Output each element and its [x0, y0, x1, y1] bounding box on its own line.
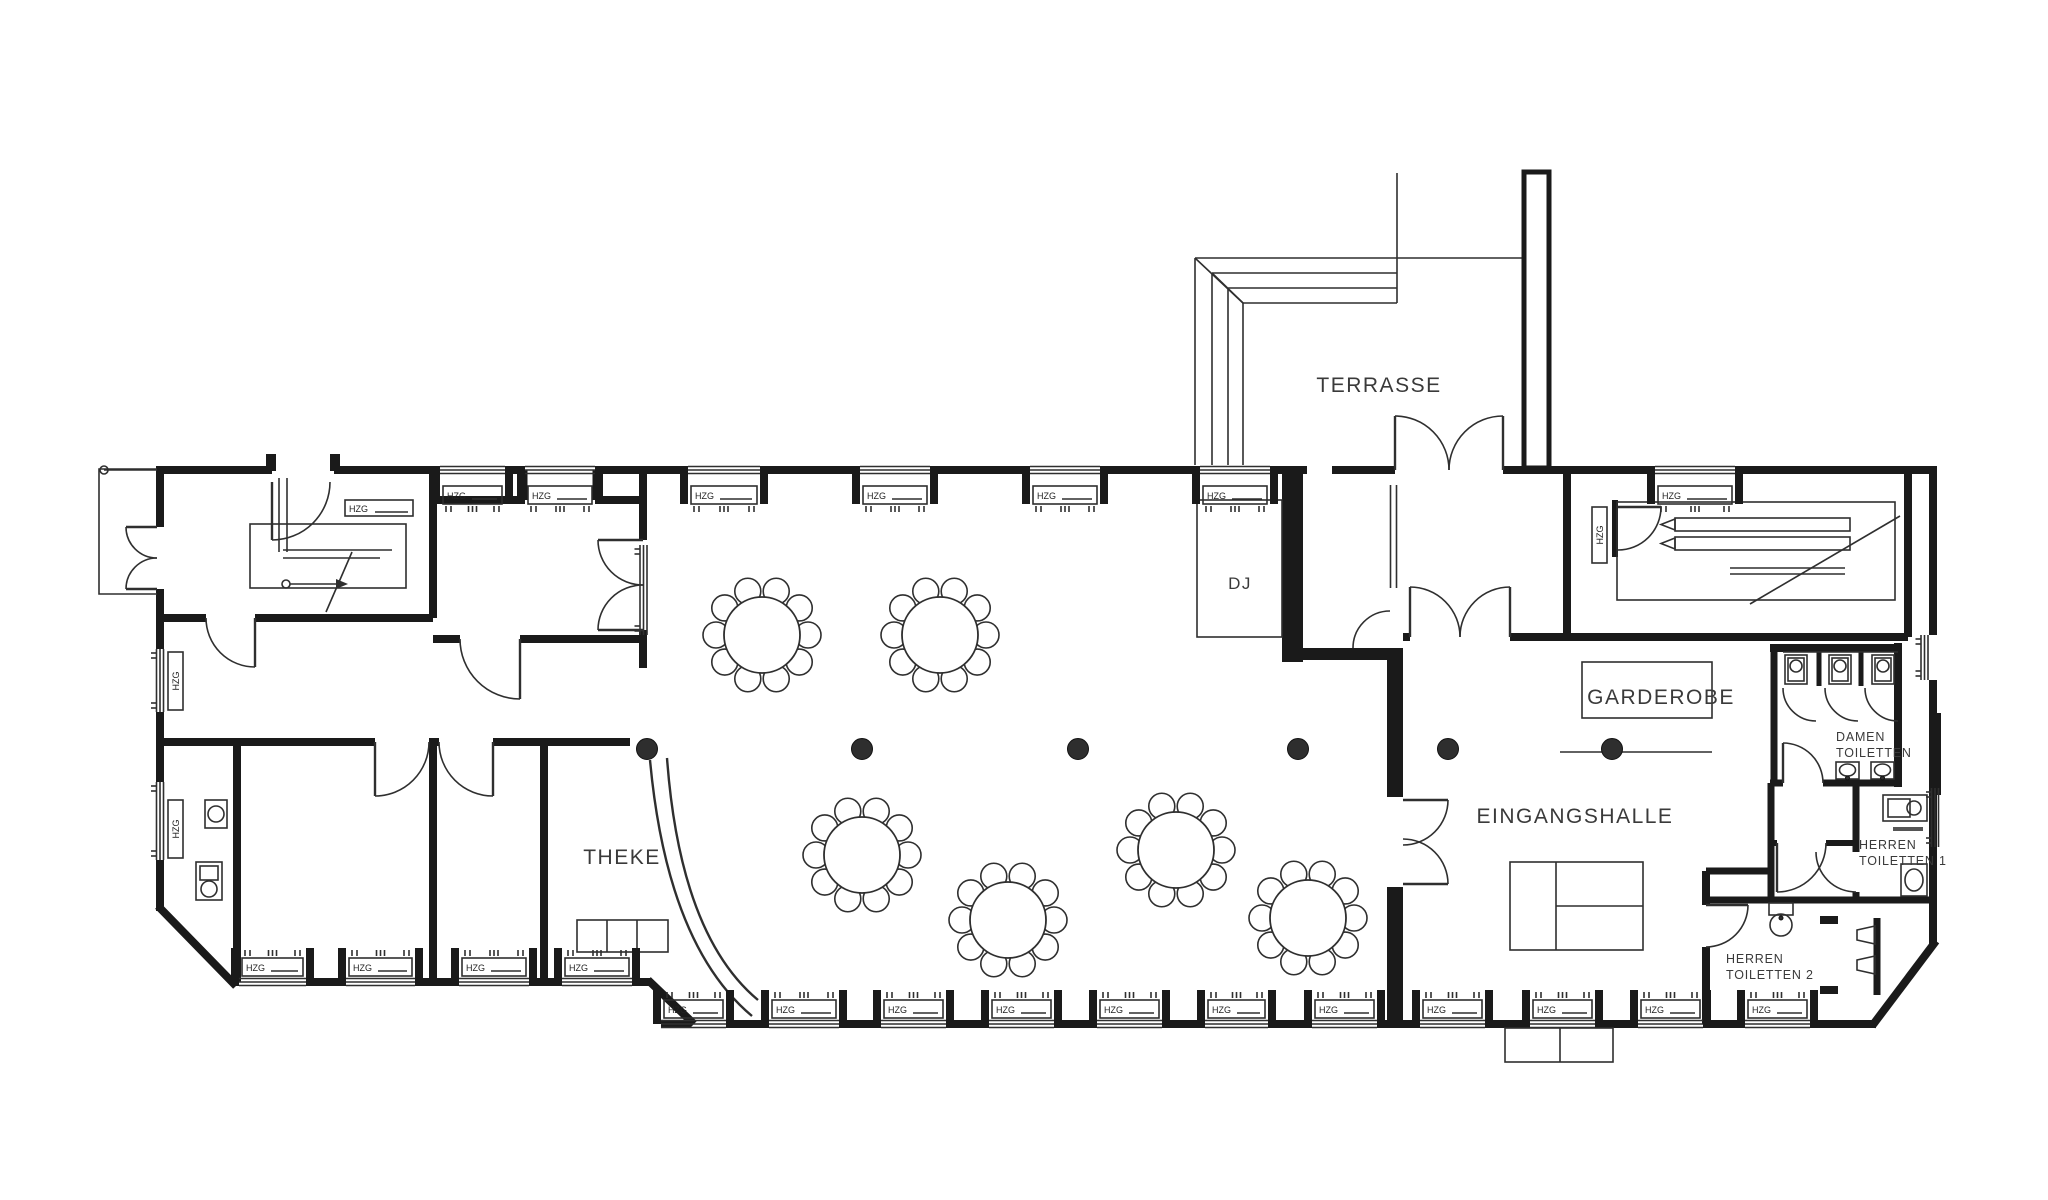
radiator-label: HZG — [1662, 491, 1681, 501]
label-herren1-2: TOILETTEN 1 — [1859, 854, 1947, 868]
radiator-label: HZG — [246, 963, 265, 973]
window: HZG — [1522, 990, 1603, 1028]
radiator-label: HZG — [888, 1005, 907, 1015]
floor-plan-drawing: HZGHZGHZGHZGHZGHZGHZGHZGHZGHZGHZGHZGHZGH… — [0, 0, 2048, 1200]
radiator-label: HZG — [466, 963, 485, 973]
table-top — [824, 817, 900, 893]
radiator-label: HZG — [776, 1005, 795, 1015]
radiator-label: HZG — [353, 963, 372, 973]
window: HZG — [517, 467, 603, 513]
window: HZG — [451, 948, 537, 986]
table-top — [1270, 880, 1346, 956]
window: HZG — [1089, 990, 1170, 1028]
radiator-label: HZG — [867, 491, 886, 501]
window — [151, 782, 164, 860]
toilet — [1901, 864, 1927, 896]
toilet — [1829, 655, 1851, 684]
label-dj: DJ — [1228, 574, 1252, 593]
table-top — [724, 597, 800, 673]
column — [637, 739, 658, 760]
bar-counter — [577, 758, 758, 1016]
window: HZG — [873, 990, 954, 1028]
window: HZG — [1304, 990, 1385, 1028]
radiator-label: HZG — [1645, 1005, 1664, 1015]
column — [852, 739, 873, 760]
window: HZG — [680, 467, 768, 513]
window: HZG — [981, 990, 1062, 1028]
radiator-label: HZG — [1537, 1005, 1556, 1015]
window: HZG — [852, 467, 938, 513]
column — [1438, 739, 1459, 760]
radiator: HZG — [1592, 507, 1607, 563]
window: HZG — [1647, 467, 1743, 513]
radiator-label: HZG — [1207, 491, 1226, 501]
toilet — [1872, 655, 1894, 684]
dj-booth — [1197, 500, 1282, 637]
radiator: HZG — [168, 800, 183, 858]
radiator-label: HZG — [1427, 1005, 1446, 1015]
service-room-fixtures — [196, 800, 227, 900]
generated-fixtures: HZGHZGHZGHZGHZGHZGHZGHZGHZGHZGHZGHZGHZGH… — [151, 467, 1939, 1028]
radiator-label: HZG — [447, 491, 466, 501]
round-table — [803, 798, 921, 911]
window: HZG — [1737, 990, 1818, 1028]
door-swing — [126, 527, 157, 558]
radiator-label: HZG — [1595, 526, 1605, 545]
radiator-label: HZG — [1319, 1005, 1338, 1015]
entrance-porch — [1505, 1028, 1613, 1062]
shelf — [1893, 827, 1923, 831]
radiator-label: HZG — [1752, 1005, 1771, 1015]
round-table — [1117, 793, 1235, 906]
radiator: HZG — [345, 500, 413, 516]
radiator-label: HZG — [1037, 491, 1056, 501]
radiator-label: HZG — [171, 820, 181, 839]
label-herren1-1: HERREN — [1859, 838, 1917, 852]
window: HZG — [231, 948, 314, 986]
window: HZG — [1197, 990, 1276, 1028]
door-swing — [126, 558, 157, 589]
label-theke: THEKE — [583, 846, 661, 869]
table-top — [970, 882, 1046, 958]
entrance-hall-furniture — [1510, 862, 1643, 950]
toilet — [1785, 655, 1807, 684]
round-table — [881, 578, 999, 691]
floor-plan-canvas: HZGHZGHZGHZGHZGHZGHZGHZGHZGHZGHZGHZGHZGH… — [0, 0, 2048, 1200]
column — [1288, 739, 1309, 760]
radiator-label: HZG — [668, 1005, 687, 1015]
entry-vestibule — [99, 469, 157, 594]
window: HZG — [1022, 467, 1108, 513]
radiator-label: HZG — [569, 963, 588, 973]
right-wall-pilaster — [1929, 713, 1941, 795]
terrace-pillar — [1524, 172, 1549, 468]
column — [1602, 739, 1623, 760]
round-table — [1249, 861, 1367, 974]
label-herren2-2: TOILETTEN 2 — [1726, 968, 1814, 982]
radiator-label: HZG — [1104, 1005, 1123, 1015]
radiator: HZG — [168, 652, 183, 710]
window — [635, 545, 648, 635]
window: HZG — [1630, 990, 1711, 1028]
herren2-fixtures — [1769, 903, 1875, 974]
round-table — [703, 578, 821, 691]
radiator-label: HZG — [1212, 1005, 1231, 1015]
radiator-label: HZG — [171, 672, 181, 691]
table-top — [1138, 812, 1214, 888]
label-herren2-1: HERREN — [1726, 952, 1784, 966]
label-eingangshalle: EINGANGSHALLE — [1477, 805, 1674, 828]
column — [1068, 739, 1089, 760]
round-table — [949, 863, 1067, 976]
window: HZG — [1192, 467, 1278, 513]
radiator-label: HZG — [996, 1005, 1015, 1015]
window — [1916, 635, 1929, 680]
window: HZG — [554, 948, 640, 986]
label-terrasse: TERRASSE — [1316, 374, 1441, 397]
window — [151, 649, 164, 712]
terrace — [1195, 172, 1549, 468]
radiator-label: HZG — [349, 504, 368, 514]
radiator-label: HZG — [695, 491, 714, 501]
urinal — [1857, 956, 1875, 974]
label-garderobe: GARDEROBE — [1587, 686, 1735, 709]
label-damen-1: DAMEN — [1836, 730, 1885, 744]
label-damen-2: TOILETTEN — [1836, 746, 1912, 760]
table-top — [902, 597, 978, 673]
window: HZG — [761, 990, 847, 1028]
window: HZG — [1412, 990, 1493, 1028]
urinal — [1857, 926, 1875, 944]
window: HZG — [338, 948, 423, 986]
radiator-label: HZG — [532, 491, 551, 501]
sink — [1871, 762, 1894, 780]
sink — [1836, 762, 1859, 780]
window: HZG — [432, 467, 513, 513]
